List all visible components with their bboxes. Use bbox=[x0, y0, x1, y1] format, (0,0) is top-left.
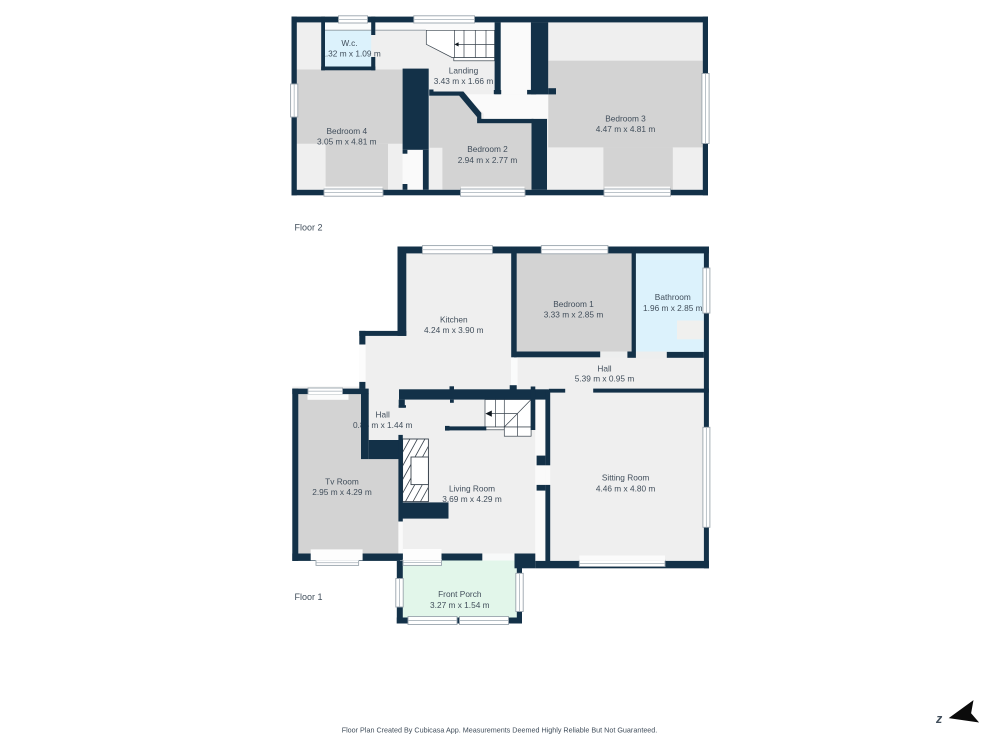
svg-text:Bathroom: Bathroom bbox=[655, 292, 691, 302]
svg-text:Floor 2: Floor 2 bbox=[295, 222, 323, 232]
svg-text:5.39 m x 0.95 m: 5.39 m x 0.95 m bbox=[575, 373, 635, 383]
svg-text:z: z bbox=[935, 712, 943, 726]
svg-text:Kitchen: Kitchen bbox=[440, 315, 468, 325]
svg-text:Bedroom 4: Bedroom 4 bbox=[327, 126, 368, 136]
svg-text:4.46 m x 4.80 m: 4.46 m x 4.80 m bbox=[596, 483, 656, 493]
svg-text:3.27 m x 1.54 m: 3.27 m x 1.54 m bbox=[430, 600, 490, 610]
svg-text:Floor 1: Floor 1 bbox=[295, 592, 323, 602]
svg-text:Bedroom 1: Bedroom 1 bbox=[553, 299, 594, 309]
svg-text:4.47 m x 4.81 m: 4.47 m x 4.81 m bbox=[596, 124, 656, 134]
svg-text:Bedroom 2: Bedroom 2 bbox=[467, 144, 508, 154]
svg-text:2.94 m x 2.77 m: 2.94 m x 2.77 m bbox=[458, 155, 518, 165]
svg-text:Front Porch: Front Porch bbox=[438, 589, 482, 599]
svg-text:Living Room: Living Room bbox=[449, 484, 495, 494]
svg-text:3.43 m x 1.66 m: 3.43 m x 1.66 m bbox=[434, 76, 494, 86]
svg-text:Bedroom 3: Bedroom 3 bbox=[605, 113, 646, 123]
svg-text:Tv Room: Tv Room bbox=[325, 477, 359, 487]
svg-text:Sitting Room: Sitting Room bbox=[602, 473, 650, 483]
svg-text:2.95 m x 4.29 m: 2.95 m x 4.29 m bbox=[312, 487, 372, 497]
svg-text:3.69 m x 4.29 m: 3.69 m x 4.29 m bbox=[442, 494, 502, 504]
svg-text:Hall: Hall bbox=[597, 363, 611, 373]
svg-text:3.33 m x 2.85 m: 3.33 m x 2.85 m bbox=[544, 310, 604, 320]
svg-text:Floor Plan Created By Cubicasa: Floor Plan Created By Cubicasa App. Meas… bbox=[342, 725, 658, 734]
svg-text:1.96 m x 2.85 m: 1.96 m x 2.85 m bbox=[643, 303, 703, 313]
svg-text:Hall: Hall bbox=[376, 409, 390, 419]
svg-text:Landing: Landing bbox=[449, 65, 479, 75]
svg-text:W.c.: W.c. bbox=[341, 38, 357, 48]
svg-text:4.24 m x 3.90 m: 4.24 m x 3.90 m bbox=[424, 325, 484, 335]
svg-text:3.05 m x 4.81 m: 3.05 m x 4.81 m bbox=[317, 137, 377, 147]
